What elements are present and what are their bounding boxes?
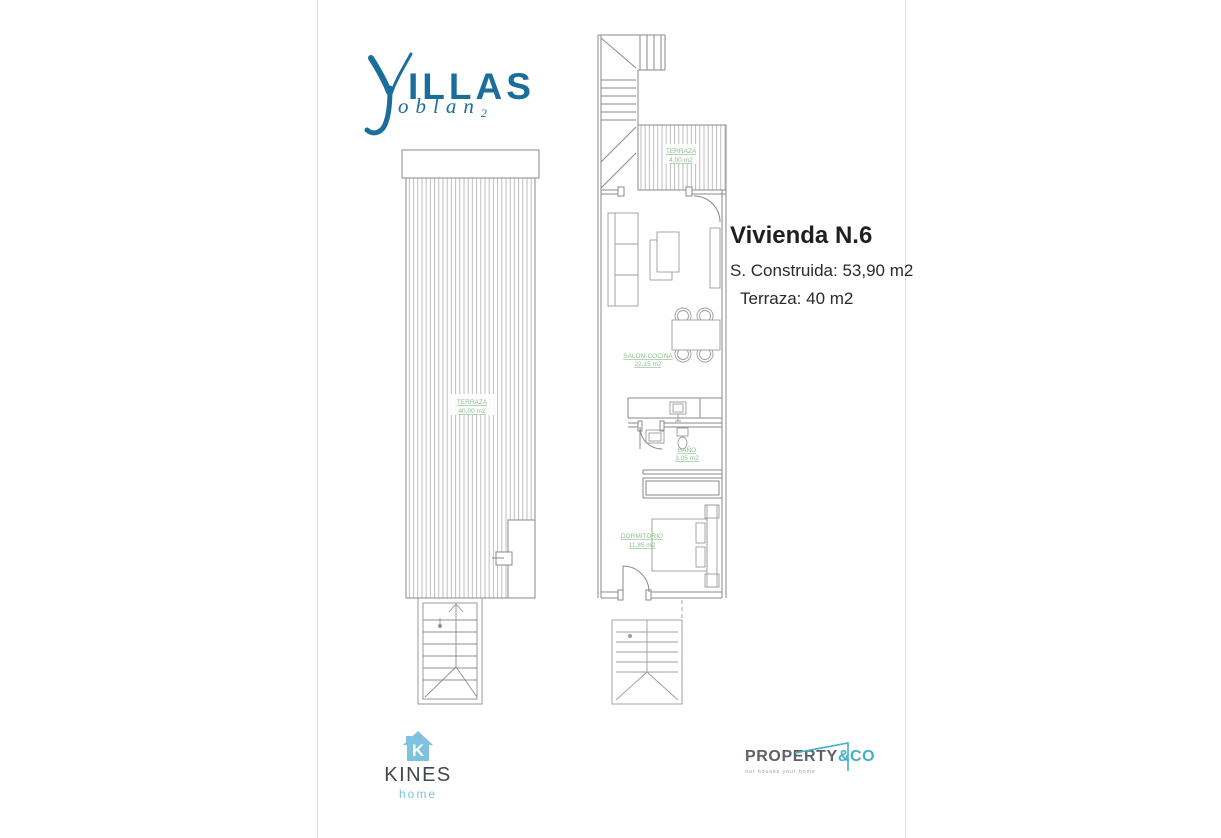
unit-terrace-area: Terraza: 40 m2 xyxy=(730,289,913,309)
terraza-area: 4,00 m2 xyxy=(669,157,693,164)
terrace-floorplan: TERRAZA 40,00 m2 xyxy=(392,143,547,713)
property-co-logo: PROPERTY&CO our houses your home xyxy=(745,748,875,775)
roof-outline-icon xyxy=(795,739,855,773)
dormitorio-area: 11,85 m2 xyxy=(629,542,656,549)
floorplan-sheet: ILLAS oblan2 TERRAZA xyxy=(0,0,1221,838)
salon-cocina-area: 22,15 m2 xyxy=(634,361,661,368)
dormitorio-label: DORMITORIO xyxy=(621,533,663,540)
unit-title: Vivienda N.6 xyxy=(730,222,913,250)
villas-sub-index: 2 xyxy=(481,106,487,120)
terrace-stair xyxy=(418,598,482,704)
villas-logo: ILLAS oblan2 xyxy=(364,48,574,128)
terrace-label: TERRAZA xyxy=(457,399,488,406)
house-icon: K xyxy=(403,731,433,763)
vivienda-floorplan: TERRAZA 4,00 m2 SALON-COCINA 22,15 m2 BA… xyxy=(590,28,738,718)
terrace-structure xyxy=(402,150,539,598)
bano-area: 3,05 m2 xyxy=(675,455,699,462)
terrace-room-label: TERRAZA 40,00 m2 xyxy=(450,394,494,415)
vivienda-exterior-stair xyxy=(612,600,682,704)
terraza-label: TERRAZA xyxy=(666,148,697,155)
unit-built-area: S. Construida: 53,90 m2 xyxy=(730,261,913,281)
villas-sub-word: oblan xyxy=(398,94,481,118)
kines-name: KINES xyxy=(382,764,454,787)
salon-cocina-label: SALON-COCINA xyxy=(623,353,673,360)
kines-logo: K KINES home xyxy=(382,731,454,801)
sheet-left-edge xyxy=(317,0,318,838)
bano-label: BAÑO xyxy=(678,445,696,454)
villas-subwordmark: oblan2 xyxy=(398,94,487,121)
sheet-right-edge xyxy=(905,0,906,838)
unit-info: Vivienda N.6 S. Construida: 53,90 m2 Ter… xyxy=(730,222,913,317)
vivienda-furniture xyxy=(608,213,720,587)
kines-tagline: home xyxy=(382,787,454,801)
kines-icon-letter: K xyxy=(412,741,425,760)
terrace-area: 40,00 m2 xyxy=(458,408,485,415)
